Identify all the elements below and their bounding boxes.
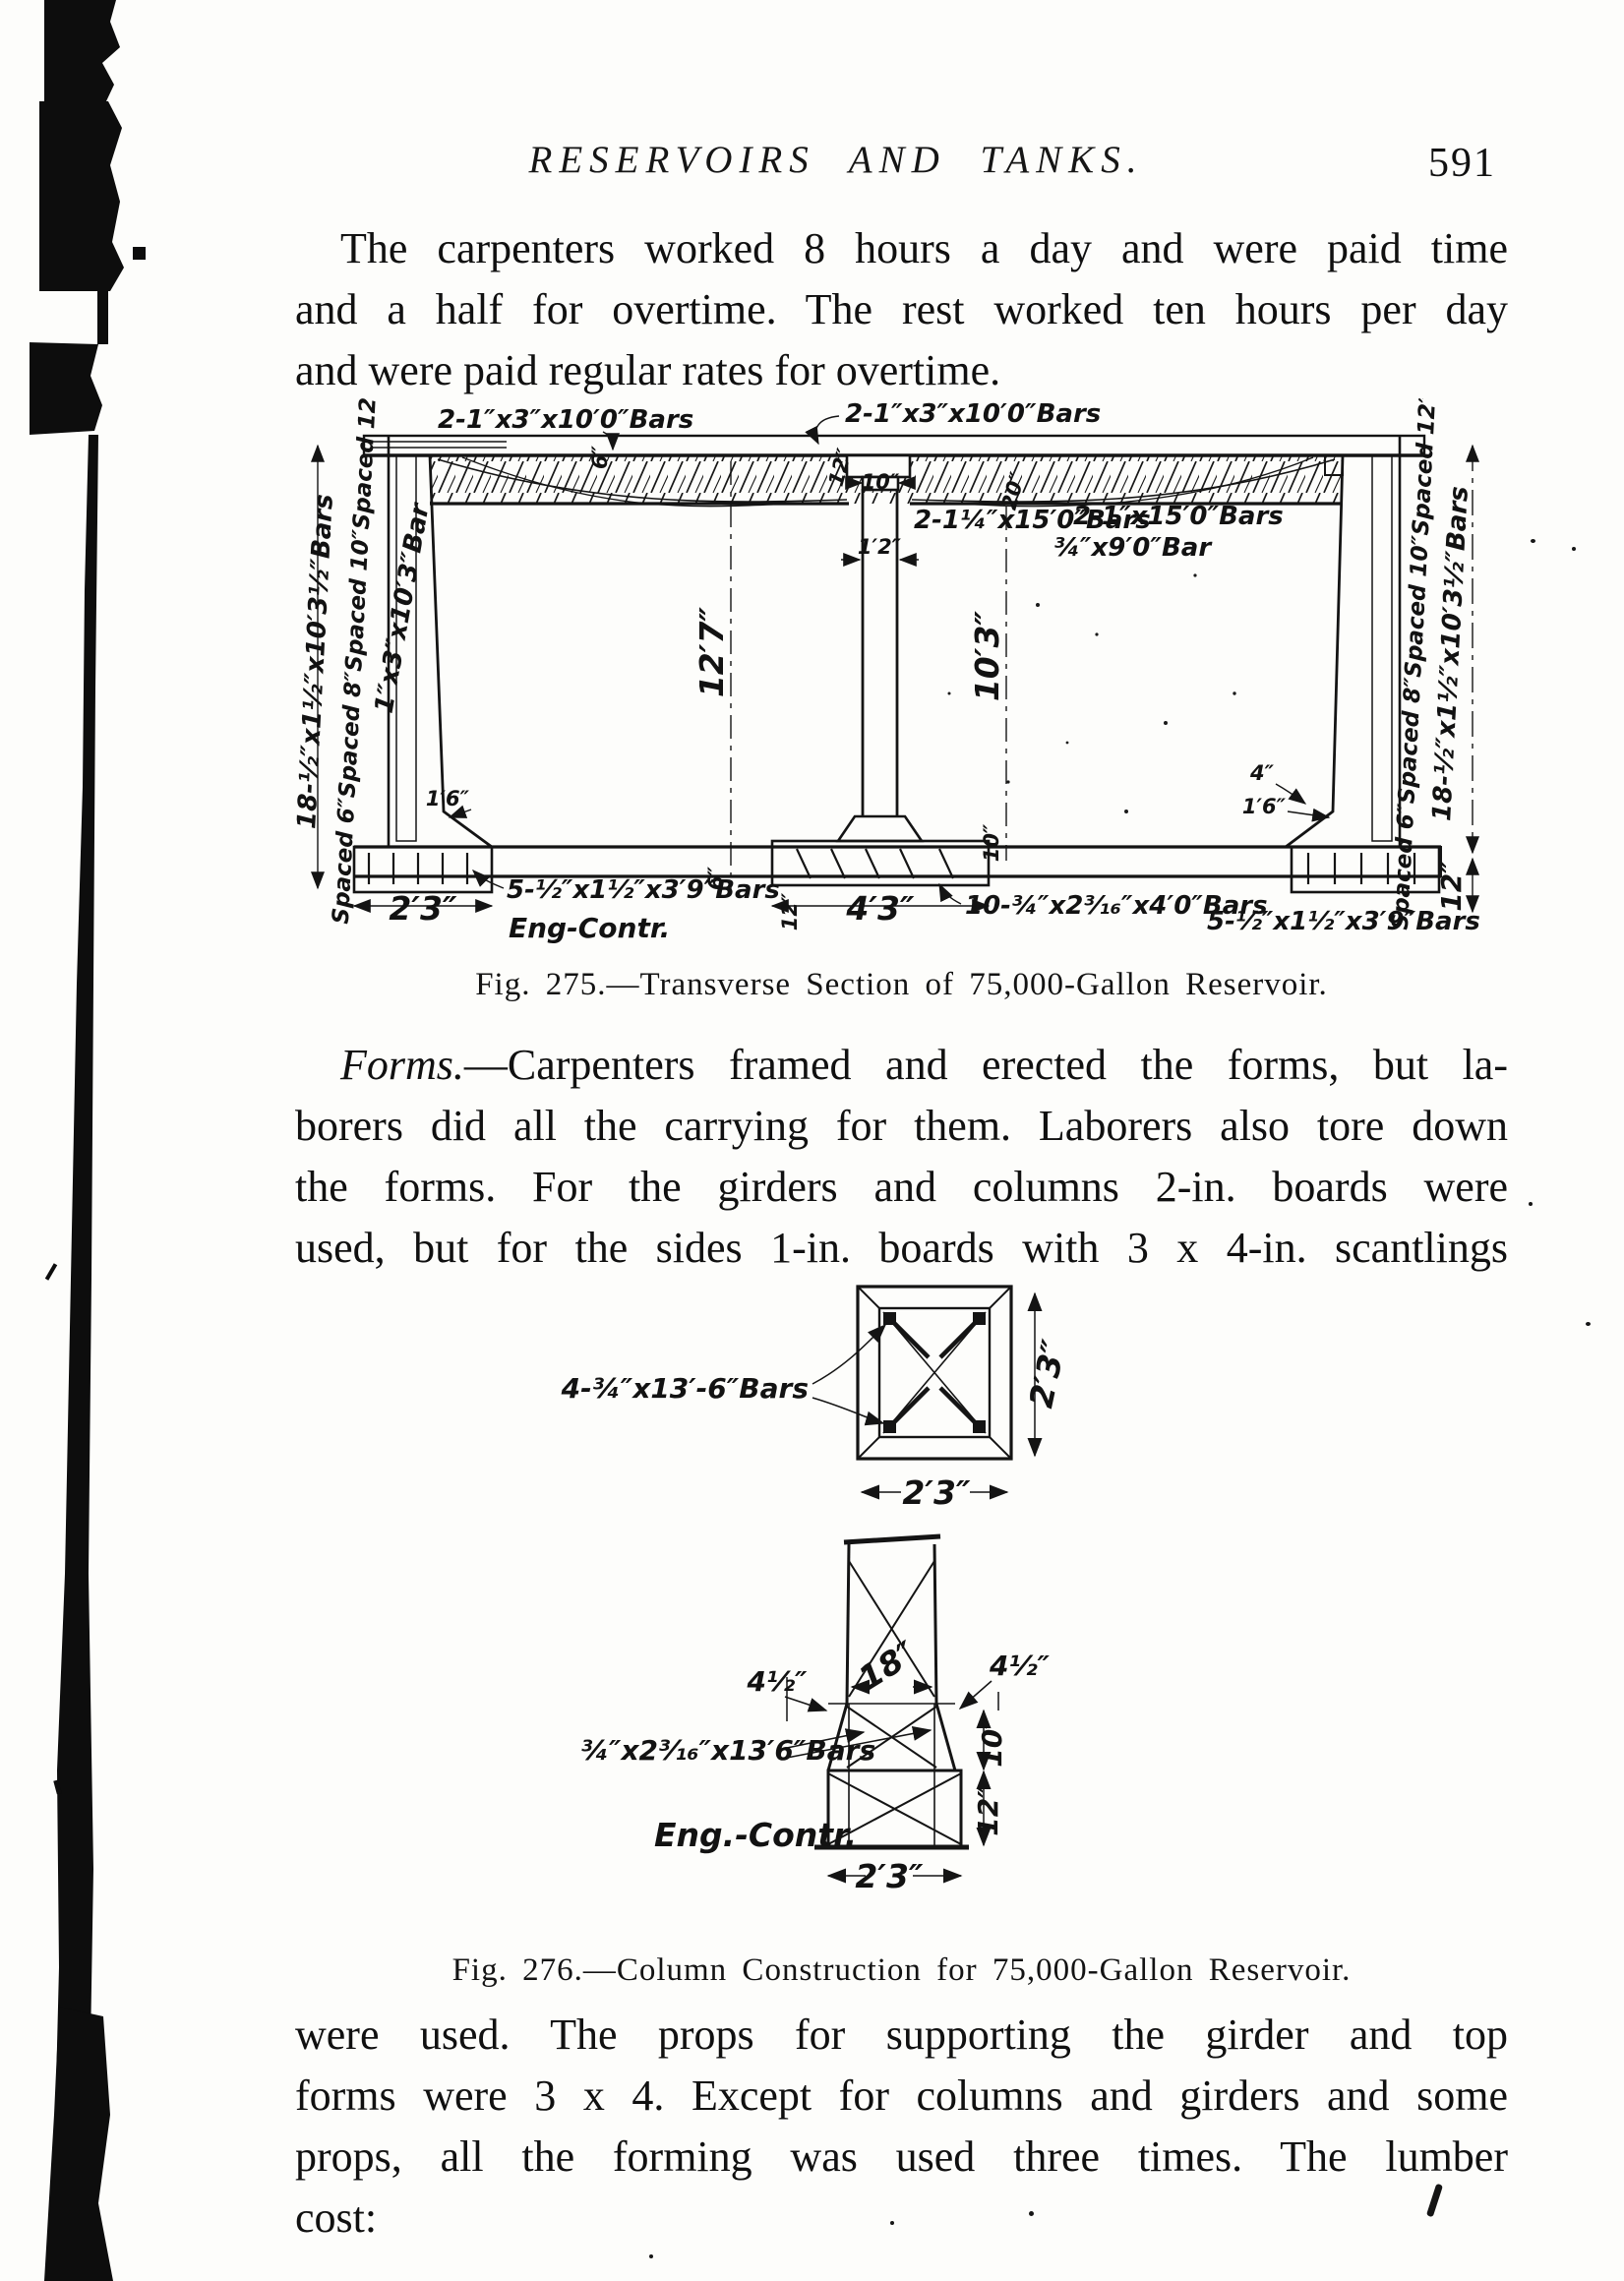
dim-wall-base-left: 1′6″ (426, 787, 470, 810)
label-plan-bars: 4-¾″x13′-6″Bars (561, 1372, 809, 1405)
dim-flare-height: 10″ (976, 1716, 1008, 1768)
dim-offset-right: 4½″ (989, 1650, 1050, 1682)
label-right-wall-spacing: Spaced 6″Spaced 8″Spaced 10″Spaced 12″ (1388, 398, 1442, 930)
label-floor-bars-left: 5-½″x1½″x3′9″Bars (507, 875, 780, 905)
dim-footing-left: 2′3″ (389, 889, 457, 928)
label-credit-276: Eng.-Contr. (654, 1816, 857, 1854)
ink-speck (649, 2254, 653, 2258)
text-line: props, all the forming was used three ti… (295, 2127, 1508, 2188)
dim-footing-center: 4′3″ (845, 889, 915, 928)
paragraph-1: The carpenters worked 8 hours a day and … (295, 218, 1508, 401)
column-elevation (814, 1536, 969, 1847)
dim-base-width: 2′3″ (855, 1857, 924, 1895)
label-girder-right-bars: 2-1″x15′0″Bars (1073, 502, 1284, 531)
ink-speck (1572, 547, 1576, 551)
text-line: cost: (295, 2188, 1508, 2249)
label-left-wall-bar: 1″x3″x10′3″Bar (370, 500, 436, 716)
text-line: were used. The props for supporting the … (295, 2005, 1508, 2066)
dim-column-width: 1′2″ (858, 535, 902, 559)
fig-275-transverse-section: 2-1″x3″x10′0″Bars 2-1″x3″x10′0″Bars 2-1¼… (261, 398, 1500, 954)
ink-speck (1029, 2211, 1034, 2216)
text-run: —Carpenters framed and erected the forms… (464, 1041, 1508, 1089)
dim-offset-left: 4½″ (747, 1665, 808, 1698)
fig276-labels: 4-¾″x13′-6″Bars 2′3″ 2′3″ 18″ 4½″ 4½″ 10… (561, 1336, 1073, 1895)
text-line: The carpenters worked 8 hours a day and … (295, 218, 1508, 279)
dim-base-height: 12″ (972, 1785, 1004, 1836)
paragraph-3: were used. The props for supporting the … (295, 2005, 1508, 2249)
text-line: and were paid regular rates for overtime… (295, 340, 1508, 401)
dim-stub-width: 10″ (862, 470, 900, 494)
dim-wall-base-right: 1′6″ (1242, 795, 1287, 818)
fig-276-column-construction: 4-¾″x13′-6″Bars 2′3″ 2′3″ 18″ 4½″ 4½″ 10… (551, 1274, 1102, 1908)
page-number: 591 (1428, 140, 1496, 187)
label-credit: Eng-Contr. (509, 912, 670, 944)
column-plan (858, 1287, 1011, 1459)
label-floor-bars-right: 5-½″x1½″x3′9″Bars (1207, 907, 1480, 936)
text-line: and a half for overtime. The rest worked… (295, 279, 1508, 340)
ink-speck (1529, 1202, 1533, 1206)
dim-slab-thickness: 6″ (588, 445, 612, 469)
label-top-right-bars: 2-1″x3″x10′0″Bars (845, 399, 1101, 429)
ink-speck (890, 2221, 894, 2225)
label-girder-right-bar2: ¾″x9′0″Bar (1053, 533, 1213, 563)
text-line: forms were 3 x 4. Except for columns and… (295, 2066, 1508, 2127)
paragraph-2: Forms.—Carpenters framed and erected the… (295, 1035, 1508, 1279)
gutter-shadow-artifact (0, 0, 167, 2281)
text-line: Forms.—Carpenters framed and erected the… (295, 1035, 1508, 1096)
dim-pedestal-top: 10″ (980, 823, 1003, 862)
fig-275-caption: Fig. 275.—Transverse Section of 75,000-G… (295, 967, 1508, 1003)
text-line: used, but for the sides 1-in. boards wit… (295, 1218, 1508, 1279)
ink-speck (1586, 1322, 1591, 1326)
fig-276-caption: Fig. 276.—Column Construction for 75,000… (295, 1952, 1508, 1989)
dim-floor-right: 12″ (1435, 861, 1468, 912)
page-header: RESERVOIRS AND TANKS. (295, 138, 1377, 182)
book-page: RESERVOIRS AND TANKS. 591 The carpenters… (0, 0, 1624, 2281)
forms-lead: Forms. (340, 1041, 464, 1089)
label-left-wall-bars: 18-½″x1½″x10′3½″Bars (292, 494, 339, 830)
dim-column-width18: 18″ (852, 1634, 923, 1698)
text-line: borers did all the carrying for them. La… (295, 1096, 1508, 1157)
dim-height-right: 10′3″ (968, 611, 1006, 702)
text-line: the forms. For the girders and columns 2… (295, 1157, 1508, 1218)
roof-slab (364, 436, 1424, 455)
label-elev-bars: ¾″x2³⁄₁₆″x13′6″Bars (580, 1734, 875, 1767)
dim-height-left: 12′7″ (692, 607, 731, 698)
dim-plan-right: 2′3″ (1021, 1336, 1073, 1411)
dim-floor-center: 12″ (778, 892, 802, 930)
dim-plan-bottom: 2′3″ (902, 1473, 971, 1512)
label-top-left-bars: 2-1″x3″x10′0″Bars (438, 405, 693, 435)
ink-speck (1531, 539, 1535, 543)
dim-wall-top-right: 4″ (1249, 761, 1275, 785)
label-right-wall-bars: 18-½″x1½″x10′3½″Bars (1427, 486, 1474, 822)
